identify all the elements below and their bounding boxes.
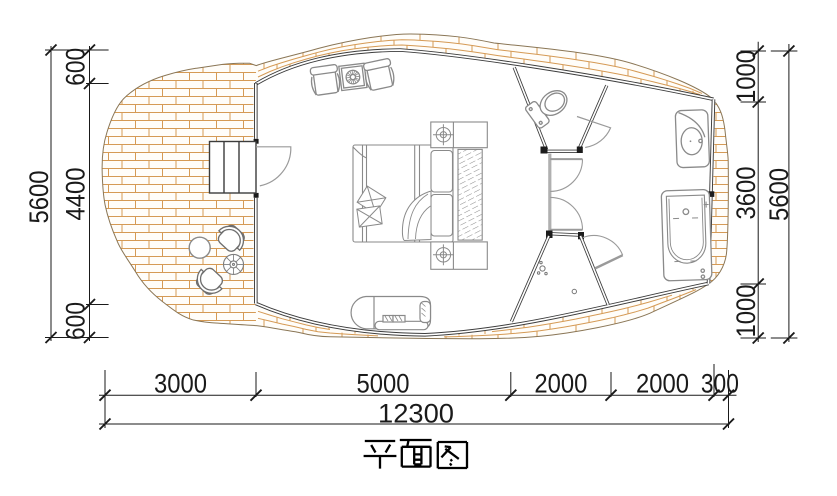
svg-text:5600: 5600	[764, 168, 794, 221]
svg-text:2000: 2000	[636, 369, 689, 399]
svg-text:12300: 12300	[378, 399, 454, 429]
svg-text:5000: 5000	[357, 369, 410, 399]
svg-text:2000: 2000	[534, 369, 587, 399]
svg-text:3600: 3600	[731, 167, 761, 220]
svg-text:300: 300	[701, 369, 739, 399]
svg-text:3000: 3000	[154, 369, 207, 399]
svg-text:4400: 4400	[61, 168, 91, 221]
svg-text:1000: 1000	[731, 285, 761, 338]
svg-text:600: 600	[61, 48, 91, 86]
svg-text:1000: 1000	[731, 50, 761, 103]
svg-text:5600: 5600	[24, 171, 54, 224]
svg-text:600: 600	[61, 302, 91, 340]
